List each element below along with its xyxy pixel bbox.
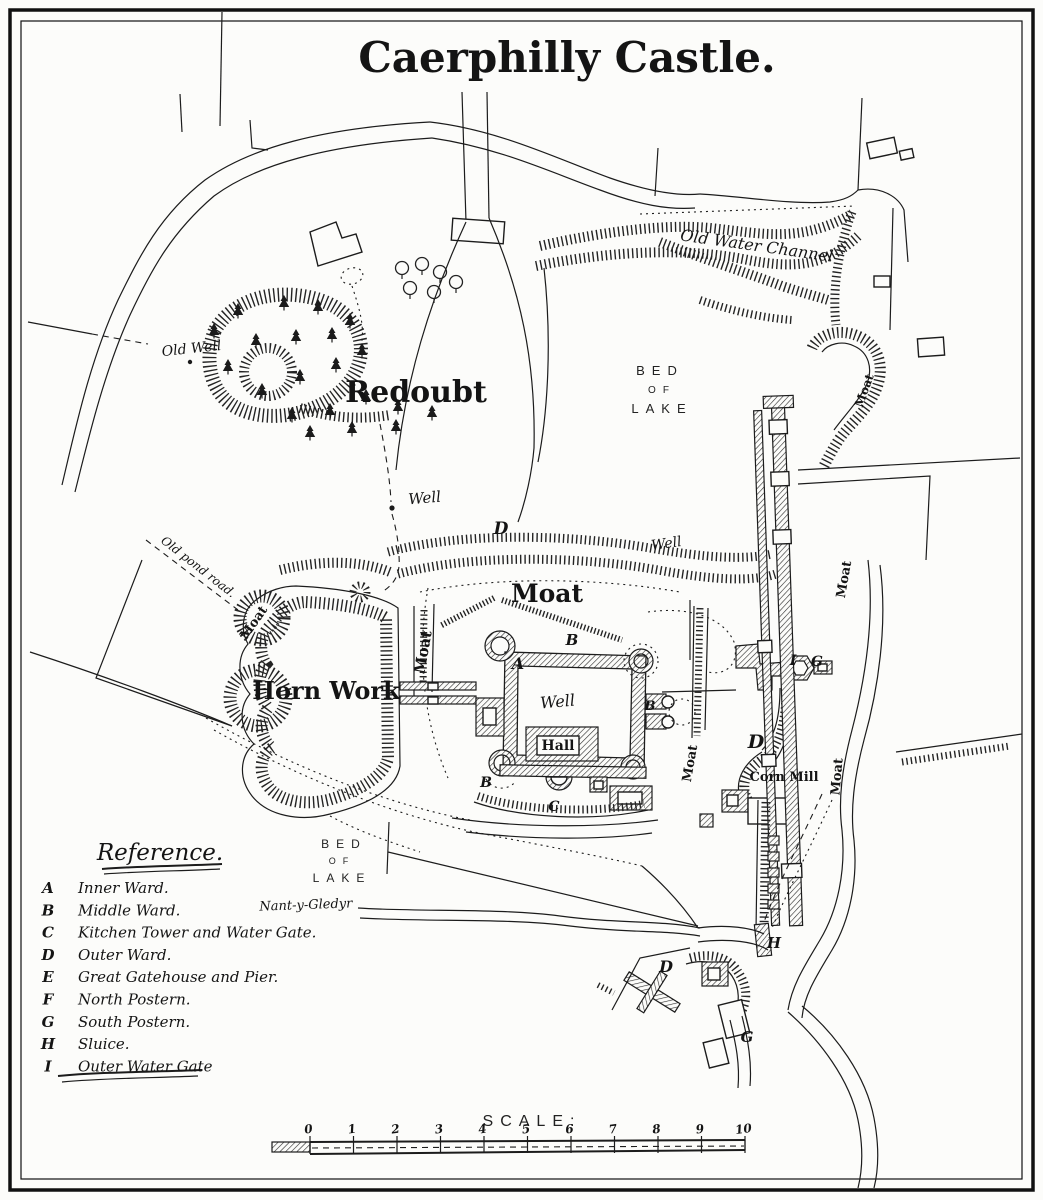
corn-mill-label: Corn Mill <box>749 770 818 785</box>
reference-label-G: South Postern. <box>78 1013 190 1031</box>
bed-of-lake-south-line3: LAKE <box>313 871 372 885</box>
mansion-building <box>310 222 362 266</box>
reference-label-C: Kitchen Tower and Water Gate. <box>77 924 316 942</box>
horn-work-label: Horn Work <box>252 676 401 705</box>
northeast-moat-bank <box>812 332 880 466</box>
moat-east-castle-label: Moat <box>680 744 701 784</box>
letter-i-outer-gate: I <box>789 653 797 669</box>
reference-key-C: C <box>42 924 54 942</box>
reference-label-E: Great Gatehouse and Pier. <box>78 968 278 986</box>
reference-label-B: Middle Ward. <box>77 901 180 919</box>
scale-tick-label-3: 3 <box>434 1122 444 1137</box>
letter-a-inner-ward: A <box>510 654 524 673</box>
reference-label-H: Sluice. <box>78 1035 130 1053</box>
moat-northeast-label: Moat <box>852 372 877 410</box>
map-title: Caerphilly Castle. <box>358 33 775 82</box>
letter-d-south: D <box>658 957 673 976</box>
bed-of-lake-north-line2: OF <box>648 385 676 396</box>
scale-tick-label-8: 8 <box>651 1121 662 1136</box>
hall-label: Hall <box>542 738 575 754</box>
reference-label-I: Outer Water Gate <box>78 1057 213 1075</box>
reference-key-H: H <box>40 1035 56 1053</box>
moat-east-dam-label: Moat <box>834 560 855 600</box>
reference-label-D: Outer Ward. <box>78 946 171 964</box>
scale-tick-label-2: 2 <box>389 1122 400 1137</box>
east-castle-moat <box>692 606 708 738</box>
reference-label-A: Inner Ward. <box>77 879 169 897</box>
letter-b-southwest: B <box>479 775 492 791</box>
west-bridge <box>400 682 476 704</box>
moat-southeast-label: Moat <box>828 757 846 796</box>
letter-b-middle-north: B <box>565 631 579 649</box>
map-page: Reference. AInner Ward.BMiddle Ward.CKit… <box>0 0 1043 1200</box>
reference-key-F: F <box>42 991 55 1009</box>
letter-h-sluice: H <box>766 934 782 952</box>
reference-heading: Reference. <box>96 840 223 866</box>
bed-of-lake-south-line2: OF <box>329 856 356 866</box>
reference-key-A: A <box>40 879 54 897</box>
cross-earthwork <box>624 971 680 1013</box>
reference-key-I: I <box>43 1057 52 1075</box>
letter-c-south: C <box>548 799 559 815</box>
letter-b-east: B <box>644 699 656 714</box>
bed-of-lake-north-line1: BED <box>636 363 684 378</box>
scale-tick-label-9: 9 <box>695 1121 706 1136</box>
well-inner-ward-label: Well <box>539 691 575 713</box>
scale-tick-label-7: 7 <box>608 1121 619 1136</box>
castle-core <box>440 598 736 838</box>
reference-key-G: G <box>42 1013 55 1031</box>
moat-hornwork-label: Moat <box>237 603 271 642</box>
letter-g-south-postern: G <box>811 654 823 670</box>
scale-bar: SCALE: 012345678910 <box>272 1113 753 1154</box>
redoubt-label: Redoubt <box>345 375 487 410</box>
letter-g-south: G <box>741 1028 754 1046</box>
reference-panel: Reference. AInner Ward.BMiddle Ward.CKit… <box>40 840 317 1082</box>
scale-tick-label-0: 0 <box>303 1121 314 1136</box>
letter-d-north-moat: D <box>493 519 509 539</box>
reference-key-B: B <box>41 901 55 919</box>
letter-d-outer-ward: D <box>747 731 765 753</box>
old-pond-road-label: Old pond road. <box>158 533 238 600</box>
bed-of-lake-north-line3: LAKE <box>631 401 692 416</box>
scale-tick-label-10: 10 <box>734 1121 753 1137</box>
nant-y-gledyr-label: Nant-y-Gledyr <box>258 896 353 914</box>
deciduous-trees <box>396 258 463 304</box>
well-marker <box>389 505 394 510</box>
road-network <box>28 12 1020 560</box>
reference-key-E: E <box>41 968 54 986</box>
bed-of-lake-south-line1: BED <box>321 837 367 851</box>
reference-key-D: D <box>40 946 54 964</box>
northwest-tower <box>485 631 515 661</box>
moat-north-label: Moat <box>511 579 584 608</box>
caerphilly-map-svg: Reference. AInner Ward.BMiddle Ward.CKit… <box>0 0 1043 1200</box>
well-redoubt-label: Well <box>408 488 442 509</box>
reference-label-F: North Postern. <box>77 991 191 1009</box>
scale-tick-label-1: 1 <box>347 1122 357 1137</box>
